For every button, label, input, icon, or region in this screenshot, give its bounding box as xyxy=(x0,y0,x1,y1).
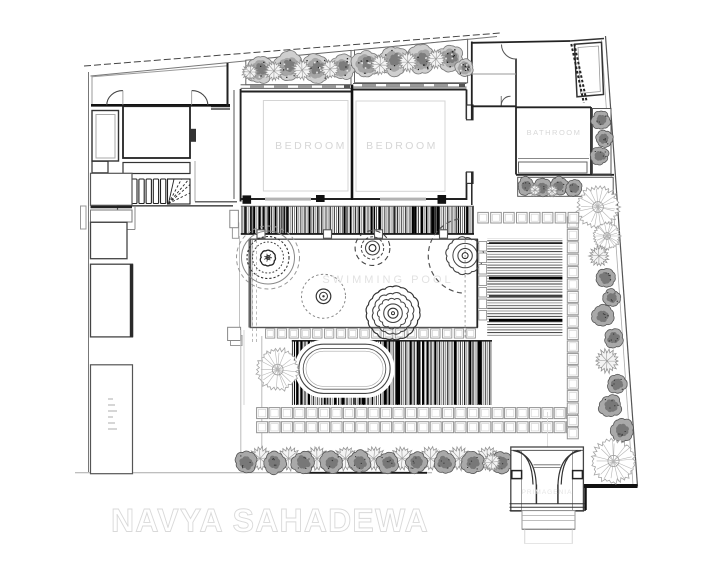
svg-text:BEDROOM: BEDROOM xyxy=(275,140,347,152)
svg-text:SWIMMING POOL: SWIMMING POOL xyxy=(322,274,453,286)
svg-text:PRIMAGENIA: PRIMAGENIA xyxy=(522,489,573,496)
svg-text:NAVYA SAHADEWA: NAVYA SAHADEWA xyxy=(111,503,429,539)
svg-text:BATHROOM: BATHROOM xyxy=(527,128,582,137)
svg-text:BEDROOM: BEDROOM xyxy=(366,140,438,152)
